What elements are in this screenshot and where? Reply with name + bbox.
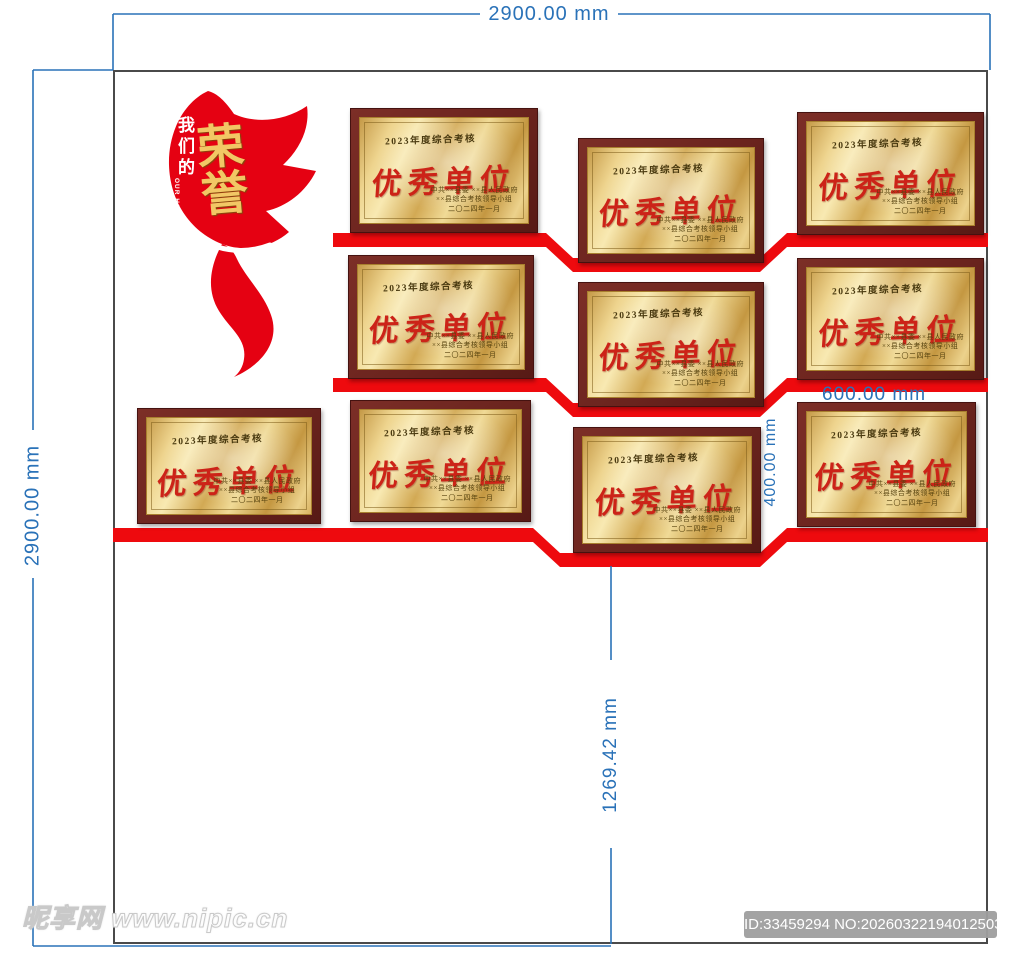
- site-watermark: 昵享网 www.nipic.cn: [22, 898, 288, 935]
- award-plaque: 2023年度综合考核 优秀单位 中共××县委 ××县人民政府 ××县综合考核领导…: [348, 255, 534, 379]
- plaque-date-line: 二〇二四年一月: [868, 499, 956, 508]
- plaque-issuer-line2: ××县综合考核领导小组: [423, 484, 511, 493]
- plaque-issuer: 中共××县委 ××县人民政府 ××县综合考核领导小组 二〇二四年一月: [876, 188, 964, 216]
- dim-label-top-width: 2900.00 mm: [482, 3, 616, 26]
- flag-honor-word: 荣誉: [188, 120, 244, 218]
- plaque-plate: 2023年度综合考核 优秀单位 中共××县委 ××县人民政府 ××县综合考核领导…: [806, 121, 975, 226]
- dim-label-gap-height: 400.00 mm: [762, 407, 780, 517]
- plaque-heading: 2023年度综合考核: [831, 423, 967, 442]
- plaque-issuer: 中共××县委 ××县人民政府 ××县综合考核领导小组 二〇二四年一月: [426, 332, 514, 360]
- plaque-plate: 2023年度综合考核 优秀单位 中共××县委 ××县人民政府 ××县综合考核领导…: [806, 411, 967, 518]
- award-plaque: 2023年度综合考核 优秀单位 中共××县委 ××县人民政府 ××县综合考核领导…: [797, 112, 984, 235]
- plaque-issuer-line1: 中共××县委 ××县人民政府: [653, 506, 741, 515]
- plaque-issuer-line2: ××县综合考核领导小组: [876, 342, 964, 351]
- flag-prefix-en-text: OUR HONOR: [173, 178, 180, 227]
- plaque-issuer-line1: 中共××县委 ××县人民政府: [430, 186, 518, 195]
- plaque-issuer-line2: ××县综合考核领导小组: [656, 225, 744, 234]
- plaque-date-line: 二〇二四年一月: [213, 496, 301, 505]
- award-plaque: 2023年度综合考核 优秀单位 中共××县委 ××县人民政府 ××县综合考核领导…: [573, 427, 761, 553]
- award-plaque: 2023年度综合考核 优秀单位 中共××县委 ××县人民政府 ××县综合考核领导…: [137, 408, 321, 524]
- dim-label-plaque-width: 600.00 mm: [822, 384, 926, 406]
- plaque-issuer-line1: 中共××县委 ××县人民政府: [213, 477, 301, 486]
- plaque-heading: 2023年度综合考核: [613, 159, 755, 178]
- award-plaque: 2023年度综合考核 优秀单位 中共××县委 ××县人民政府 ××县综合考核领导…: [578, 138, 764, 263]
- plaque-heading: 2023年度综合考核: [608, 448, 751, 467]
- plaque-date-line: 二〇二四年一月: [876, 352, 964, 361]
- award-plaque: 2023年度综合考核 优秀单位 中共××县委 ××县人民政府 ××县综合考核领导…: [797, 402, 976, 527]
- plaque-date-line: 二〇二四年一月: [426, 351, 514, 360]
- flag-tail: [211, 244, 274, 377]
- plaque-issuer-line2: ××县综合考核领导小组: [426, 341, 514, 350]
- plaque-issuer: 中共××县委 ××县人民政府 ××县综合考核领导小组 二〇二四年一月: [213, 477, 301, 505]
- plaque-date-line: 二〇二四年一月: [430, 205, 518, 214]
- award-plaque: 2023年度综合考核 优秀单位 中共××县委 ××县人民政府 ××县综合考核领导…: [797, 258, 984, 380]
- plaque-plate: 2023年度综合考核 优秀单位 中共××县委 ××县人民政府 ××县综合考核领导…: [359, 409, 522, 513]
- plaque-date-line: 二〇二四年一月: [656, 379, 744, 388]
- plaque-plate: 2023年度综合考核 优秀单位 中共××县委 ××县人民政府 ××县综合考核领导…: [146, 417, 312, 515]
- plaque-heading: 2023年度综合考核: [832, 279, 974, 298]
- plaque-date-line: 二〇二四年一月: [653, 525, 741, 534]
- plaque-issuer: 中共××县委 ××县人民政府 ××县综合考核领导小组 二〇二四年一月: [430, 186, 518, 214]
- plaque-issuer-line1: 中共××县委 ××县人民政府: [876, 188, 964, 197]
- plaque-issuer-line1: 中共××县委 ××县人民政府: [656, 360, 744, 369]
- plaque-issuer-line1: 中共××县委 ××县人民政府: [656, 216, 744, 225]
- plaque-date-line: 二〇二四年一月: [876, 207, 964, 216]
- plaque-issuer-line2: ××县综合考核领导小组: [868, 489, 956, 498]
- plaque-issuer: 中共××县委 ××县人民政府 ××县综合考核领导小组 二〇二四年一月: [656, 216, 744, 244]
- plaque-issuer-line1: 中共××县委 ××县人民政府: [423, 475, 511, 484]
- plaque-plate: 2023年度综合考核 优秀单位 中共××县委 ××县人民政府 ××县综合考核领导…: [357, 264, 525, 370]
- plaque-issuer: 中共××县委 ××县人民政府 ××县综合考核领导小组 二〇二四年一月: [653, 506, 741, 534]
- dim-label-left-height: 2900.00 mm: [22, 431, 45, 581]
- award-plaque: 2023年度综合考核 优秀单位 中共××县委 ××县人民政府 ××县综合考核领导…: [578, 282, 764, 407]
- plaque-date-line: 二〇二四年一月: [423, 494, 511, 503]
- dim-label-bottom-height: 1269.42 mm: [600, 675, 622, 835]
- plaque-issuer-line2: ××县综合考核领导小组: [876, 197, 964, 206]
- plaque-issuer-line1: 中共××县委 ××县人民政府: [868, 480, 956, 489]
- plaque-date-line: 二〇二四年一月: [656, 235, 744, 244]
- plaque-issuer-line1: 中共××县委 ××县人民政府: [876, 333, 964, 342]
- plaque-heading: 2023年度综合考核: [384, 421, 521, 440]
- image-id-badge: ID:33459294 NO:20260322194012503108: [744, 911, 997, 938]
- plaque-heading: 2023年度综合考核: [171, 429, 311, 448]
- plaque-plate: 2023年度综合考核 优秀单位 中共××县委 ××县人民政府 ××县综合考核领导…: [582, 436, 752, 544]
- plaque-issuer-line2: ××县综合考核领导小组: [430, 195, 518, 204]
- plaque-issuer-line2: ××县综合考核领导小组: [653, 515, 741, 524]
- plaque-plate: 2023年度综合考核 优秀单位 中共××县委 ××县人民政府 ××县综合考核领导…: [587, 147, 755, 254]
- plaque-issuer-line2: ××县综合考核领导小组: [213, 486, 301, 495]
- plaque-plate: 2023年度综合考核 优秀单位 中共××县委 ××县人民政府 ××县综合考核领导…: [359, 117, 529, 224]
- plaque-issuer: 中共××县委 ××县人民政府 ××县综合考核领导小组 二〇二四年一月: [876, 333, 964, 361]
- plaque-heading: 2023年度综合考核: [383, 276, 525, 295]
- plaque-issuer: 中共××县委 ××县人民政府 ××县综合考核领导小组 二〇二四年一月: [656, 360, 744, 388]
- award-plaque: 2023年度综合考核 优秀单位 中共××县委 ××县人民政府 ××县综合考核领导…: [350, 400, 531, 522]
- plaque-issuer: 中共××县委 ××县人民政府 ××县综合考核领导小组 二〇二四年一月: [868, 480, 956, 508]
- award-plaque: 2023年度综合考核 优秀单位 中共××县委 ××县人民政府 ××县综合考核领导…: [350, 108, 538, 233]
- plaque-issuer-line1: 中共××县委 ××县人民政府: [426, 332, 514, 341]
- design-canvas: 我们的 OUR HONOR 荣誉 2023年度综合考核 优秀单位 中共××县委 …: [0, 0, 1024, 954]
- plaque-issuer-line2: ××县综合考核领导小组: [656, 369, 744, 378]
- plaque-issuer: 中共××县委 ××县人民政府 ××县综合考核领导小组 二〇二四年一月: [423, 475, 511, 503]
- plaque-plate: 2023年度综合考核 优秀单位 中共××县委 ××县人民政府 ××县综合考核领导…: [806, 267, 975, 371]
- plaque-heading: 2023年度综合考核: [832, 133, 974, 152]
- plaque-heading: 2023年度综合考核: [385, 129, 528, 148]
- plaque-plate: 2023年度综合考核 优秀单位 中共××县委 ××县人民政府 ××县综合考核领导…: [587, 291, 755, 398]
- plaque-heading: 2023年度综合考核: [613, 303, 755, 322]
